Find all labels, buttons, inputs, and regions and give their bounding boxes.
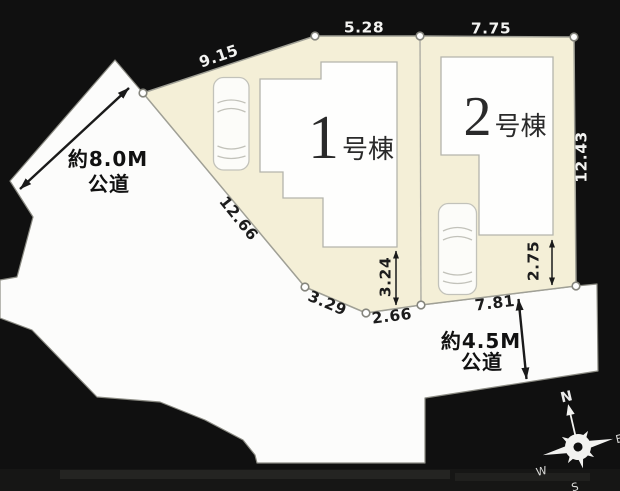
bottom-band-light (60, 470, 450, 479)
building-1-suffix: 号棟 (342, 137, 394, 163)
building-2-number: 2 (463, 89, 491, 145)
road-south-width-label: 約4.5M (441, 331, 521, 351)
dim-5-28: 5.28 (344, 20, 384, 36)
car-icon (214, 78, 250, 171)
road-west-width-label: 約8.0M (68, 149, 148, 169)
road-south-type-label: 公道 (461, 352, 503, 372)
building-2-suffix: 号棟 (494, 114, 546, 140)
building-1-label: 1 号棟 (308, 107, 394, 169)
bottom-band-light2 (455, 473, 590, 481)
building-2-label: 2 号棟 (463, 89, 546, 145)
dim-2-75: 2.75 (526, 241, 542, 281)
road-west-type-label: 公道 (88, 174, 130, 194)
dim-3-24: 3.24 (378, 257, 394, 297)
building-1-number: 1 (308, 107, 339, 169)
dim-7-75: 7.75 (471, 21, 511, 37)
site-plan-image: N E S W 9.15 5.28 7.75 12.43 12.66 3.29 … (0, 0, 620, 491)
car-icon (439, 204, 477, 295)
dim-12-43: 12.43 (574, 131, 590, 183)
